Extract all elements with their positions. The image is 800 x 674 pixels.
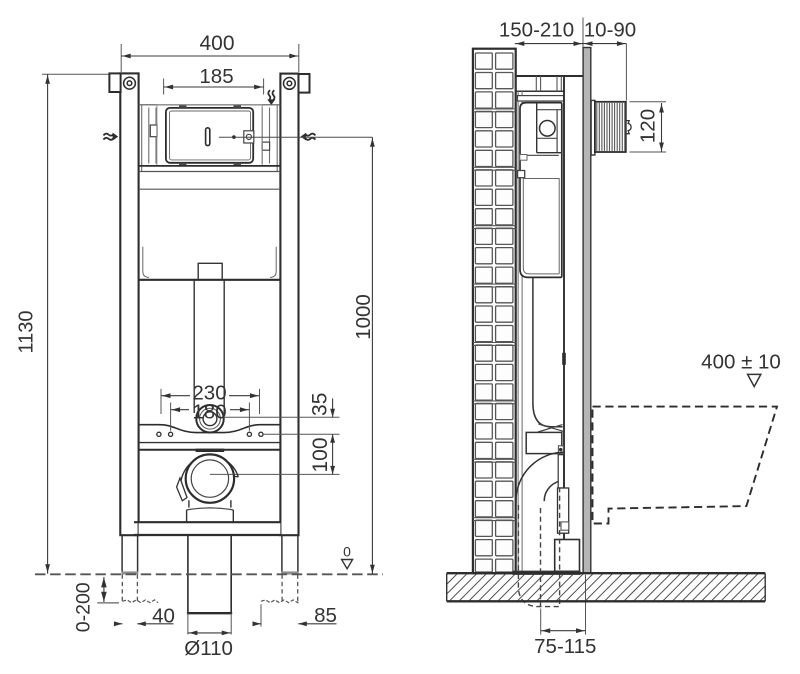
svg-text:120: 120 [637, 109, 660, 143]
svg-text:1000: 1000 [352, 294, 375, 340]
svg-text:150-210: 150-210 [499, 18, 574, 41]
svg-text:10-90: 10-90 [584, 18, 636, 41]
svg-text:185: 185 [199, 65, 233, 88]
svg-text:100: 100 [309, 437, 332, 472]
svg-text:180: 180 [192, 401, 226, 424]
svg-text:0: 0 [343, 544, 351, 560]
svg-text:85: 85 [314, 604, 337, 627]
svg-text:0-200: 0-200 [73, 582, 95, 632]
svg-text:400: 400 [199, 32, 234, 55]
svg-text:35: 35 [309, 393, 332, 416]
svg-text:Ø110: Ø110 [184, 637, 233, 660]
svg-text:400 ± 10: 400 ± 10 [701, 351, 781, 374]
svg-text:40: 40 [152, 604, 175, 627]
svg-text:1130: 1130 [16, 310, 38, 353]
svg-text:75-115: 75-115 [534, 635, 596, 658]
